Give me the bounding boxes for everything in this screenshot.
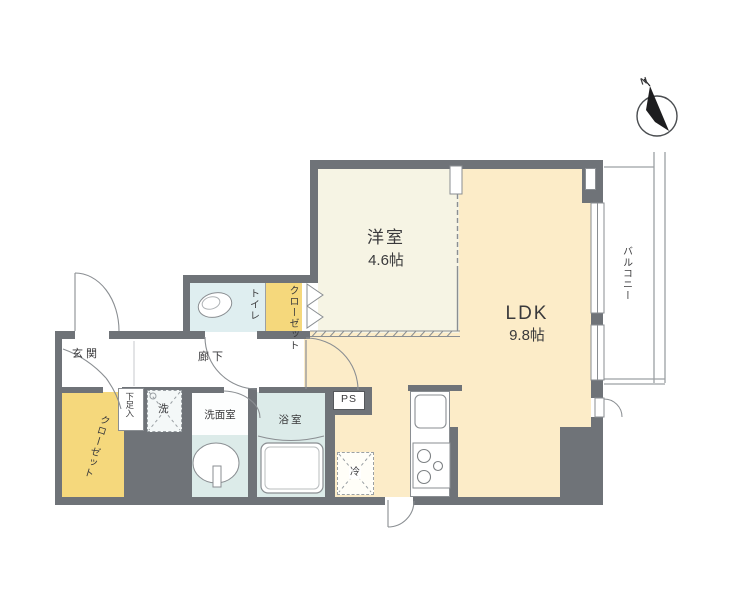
bathtub-icon bbox=[261, 443, 323, 493]
bathroom-door-curve bbox=[258, 436, 324, 441]
entrance-door-arc bbox=[75, 273, 119, 331]
stove-icon bbox=[413, 443, 450, 488]
refrigerator-label: 冷 bbox=[349, 467, 361, 479]
bottom-door bbox=[385, 497, 414, 527]
washer-label: 洗 bbox=[158, 403, 169, 415]
hallway-label: 廊下 bbox=[198, 351, 226, 364]
sink-icon bbox=[193, 443, 239, 487]
western-room-size: 4.6帖 bbox=[346, 252, 426, 269]
bifold-door-icon bbox=[307, 284, 323, 328]
toilet-label: トイレ bbox=[247, 288, 259, 332]
partition-western-ldk bbox=[450, 166, 462, 331]
ldk-size: 9.8帖 bbox=[485, 327, 569, 344]
bathroom-label: 浴室 bbox=[261, 414, 321, 426]
window-right-2 bbox=[591, 325, 604, 380]
shoe-cabinet-label: 下足入 bbox=[124, 392, 134, 430]
closet-lower-door-arc bbox=[106, 378, 121, 409]
entrance-label: 玄関 bbox=[72, 348, 100, 361]
closet-upper-label: クローゼット bbox=[268, 285, 300, 330]
window-right-1 bbox=[591, 203, 604, 313]
toilet-icon bbox=[195, 289, 234, 321]
washroom-label: 洗面室 bbox=[192, 409, 248, 421]
ldk-door-arc bbox=[306, 338, 358, 390]
kitchen-sink-icon bbox=[415, 395, 446, 428]
pipe-space-label: PS bbox=[333, 393, 365, 405]
ldk-label: LDK bbox=[487, 303, 567, 325]
balcony-outline bbox=[604, 152, 665, 384]
washer-faucet-icon bbox=[150, 393, 156, 399]
balcony-label: バルコニー bbox=[620, 246, 632, 316]
balcony-door bbox=[591, 398, 622, 417]
western-room-label: 洋室 bbox=[346, 228, 426, 248]
floorplan: 洋室 4.6帖 LDK 9.8帖 バルコニー トイレ クローゼット 玄関 廊下 … bbox=[0, 0, 731, 601]
hatched-opening-line bbox=[310, 331, 460, 337]
